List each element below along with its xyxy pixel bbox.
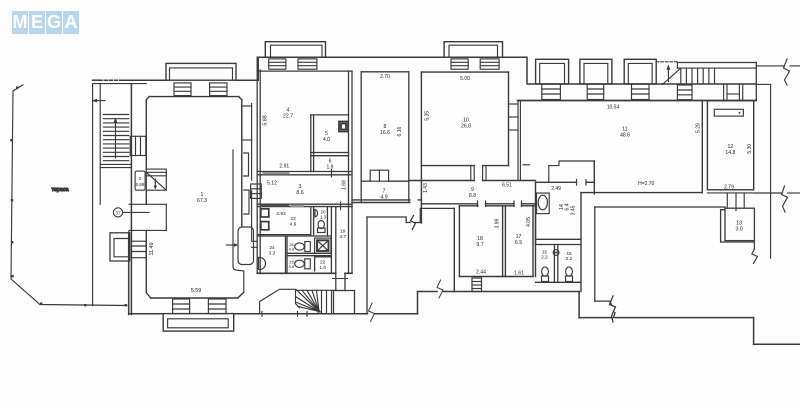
svg-text:11.49: 11.49 bbox=[149, 242, 155, 255]
svg-text:3.3: 3.3 bbox=[269, 250, 276, 256]
svg-text:1.9: 1.9 bbox=[327, 164, 334, 170]
svg-text:1.61: 1.61 bbox=[514, 271, 524, 277]
svg-text:5.59: 5.59 bbox=[191, 288, 202, 294]
svg-text:2.79: 2.79 bbox=[724, 184, 734, 190]
svg-text:5.30: 5.30 bbox=[747, 144, 753, 154]
svg-text:22: 22 bbox=[320, 260, 326, 266]
svg-text:Н=2.70: Н=2.70 bbox=[638, 181, 654, 187]
svg-text:3.99: 3.99 bbox=[495, 219, 501, 229]
svg-text:4.05: 4.05 bbox=[526, 217, 532, 227]
svg-text:5.12: 5.12 bbox=[267, 181, 277, 187]
svg-text:6.51: 6.51 bbox=[502, 183, 512, 189]
svg-text:4.0: 4.0 bbox=[323, 137, 330, 143]
svg-text:10.54: 10.54 bbox=[607, 105, 620, 111]
svg-text:9.7: 9.7 bbox=[476, 242, 483, 248]
svg-text:2.2: 2.2 bbox=[566, 256, 573, 261]
svg-text:6.16: 6.16 bbox=[397, 127, 403, 137]
svg-text:24: 24 bbox=[269, 245, 275, 251]
svg-text:8.6: 8.6 bbox=[296, 190, 303, 196]
svg-text:23: 23 bbox=[290, 216, 296, 222]
svg-text:2: 2 bbox=[139, 176, 142, 181]
svg-text:2.93: 2.93 bbox=[276, 211, 286, 217]
svg-text:4.7: 4.7 bbox=[339, 234, 346, 240]
svg-text:67.3: 67.3 bbox=[197, 198, 207, 204]
svg-text:5.88: 5.88 bbox=[263, 115, 269, 126]
svg-text:1.3: 1.3 bbox=[320, 215, 327, 220]
svg-text:3.0: 3.0 bbox=[735, 226, 742, 232]
svg-text:5.35: 5.35 bbox=[425, 111, 431, 121]
svg-text:48.6: 48.6 bbox=[620, 133, 630, 139]
svg-text:2.44: 2.44 bbox=[476, 270, 486, 276]
svg-text:19: 19 bbox=[340, 229, 346, 235]
svg-text:3.45: 3.45 bbox=[570, 205, 576, 215]
svg-text:14.8: 14.8 bbox=[725, 150, 735, 156]
svg-text:1.68: 1.68 bbox=[342, 180, 348, 190]
svg-text:2.91: 2.91 bbox=[279, 164, 289, 170]
svg-text:37: 37 bbox=[115, 210, 121, 215]
svg-text:5.29: 5.29 bbox=[696, 123, 702, 133]
svg-text:5.00: 5.00 bbox=[460, 76, 470, 82]
svg-text:0.69: 0.69 bbox=[136, 182, 145, 187]
svg-text:0.8: 0.8 bbox=[289, 247, 295, 252]
svg-text:6.5: 6.5 bbox=[515, 240, 522, 246]
svg-text:1.0: 1.0 bbox=[319, 265, 326, 271]
svg-text:22.7: 22.7 bbox=[283, 114, 293, 120]
svg-text:4.9: 4.9 bbox=[380, 194, 387, 200]
svg-text:2.2: 2.2 bbox=[541, 255, 548, 260]
svg-text:26.8: 26.8 bbox=[461, 124, 471, 130]
svg-text:0.8: 0.8 bbox=[289, 264, 295, 269]
svg-text:4.6: 4.6 bbox=[290, 221, 297, 227]
svg-text:8.8: 8.8 bbox=[469, 193, 476, 199]
svg-text:2.49: 2.49 bbox=[551, 186, 561, 192]
svg-text:1.43: 1.43 bbox=[423, 183, 429, 193]
svg-text:16.6: 16.6 bbox=[380, 130, 390, 136]
svg-text:2.70: 2.70 bbox=[380, 74, 390, 80]
svg-text:тераса: тераса bbox=[51, 187, 68, 193]
